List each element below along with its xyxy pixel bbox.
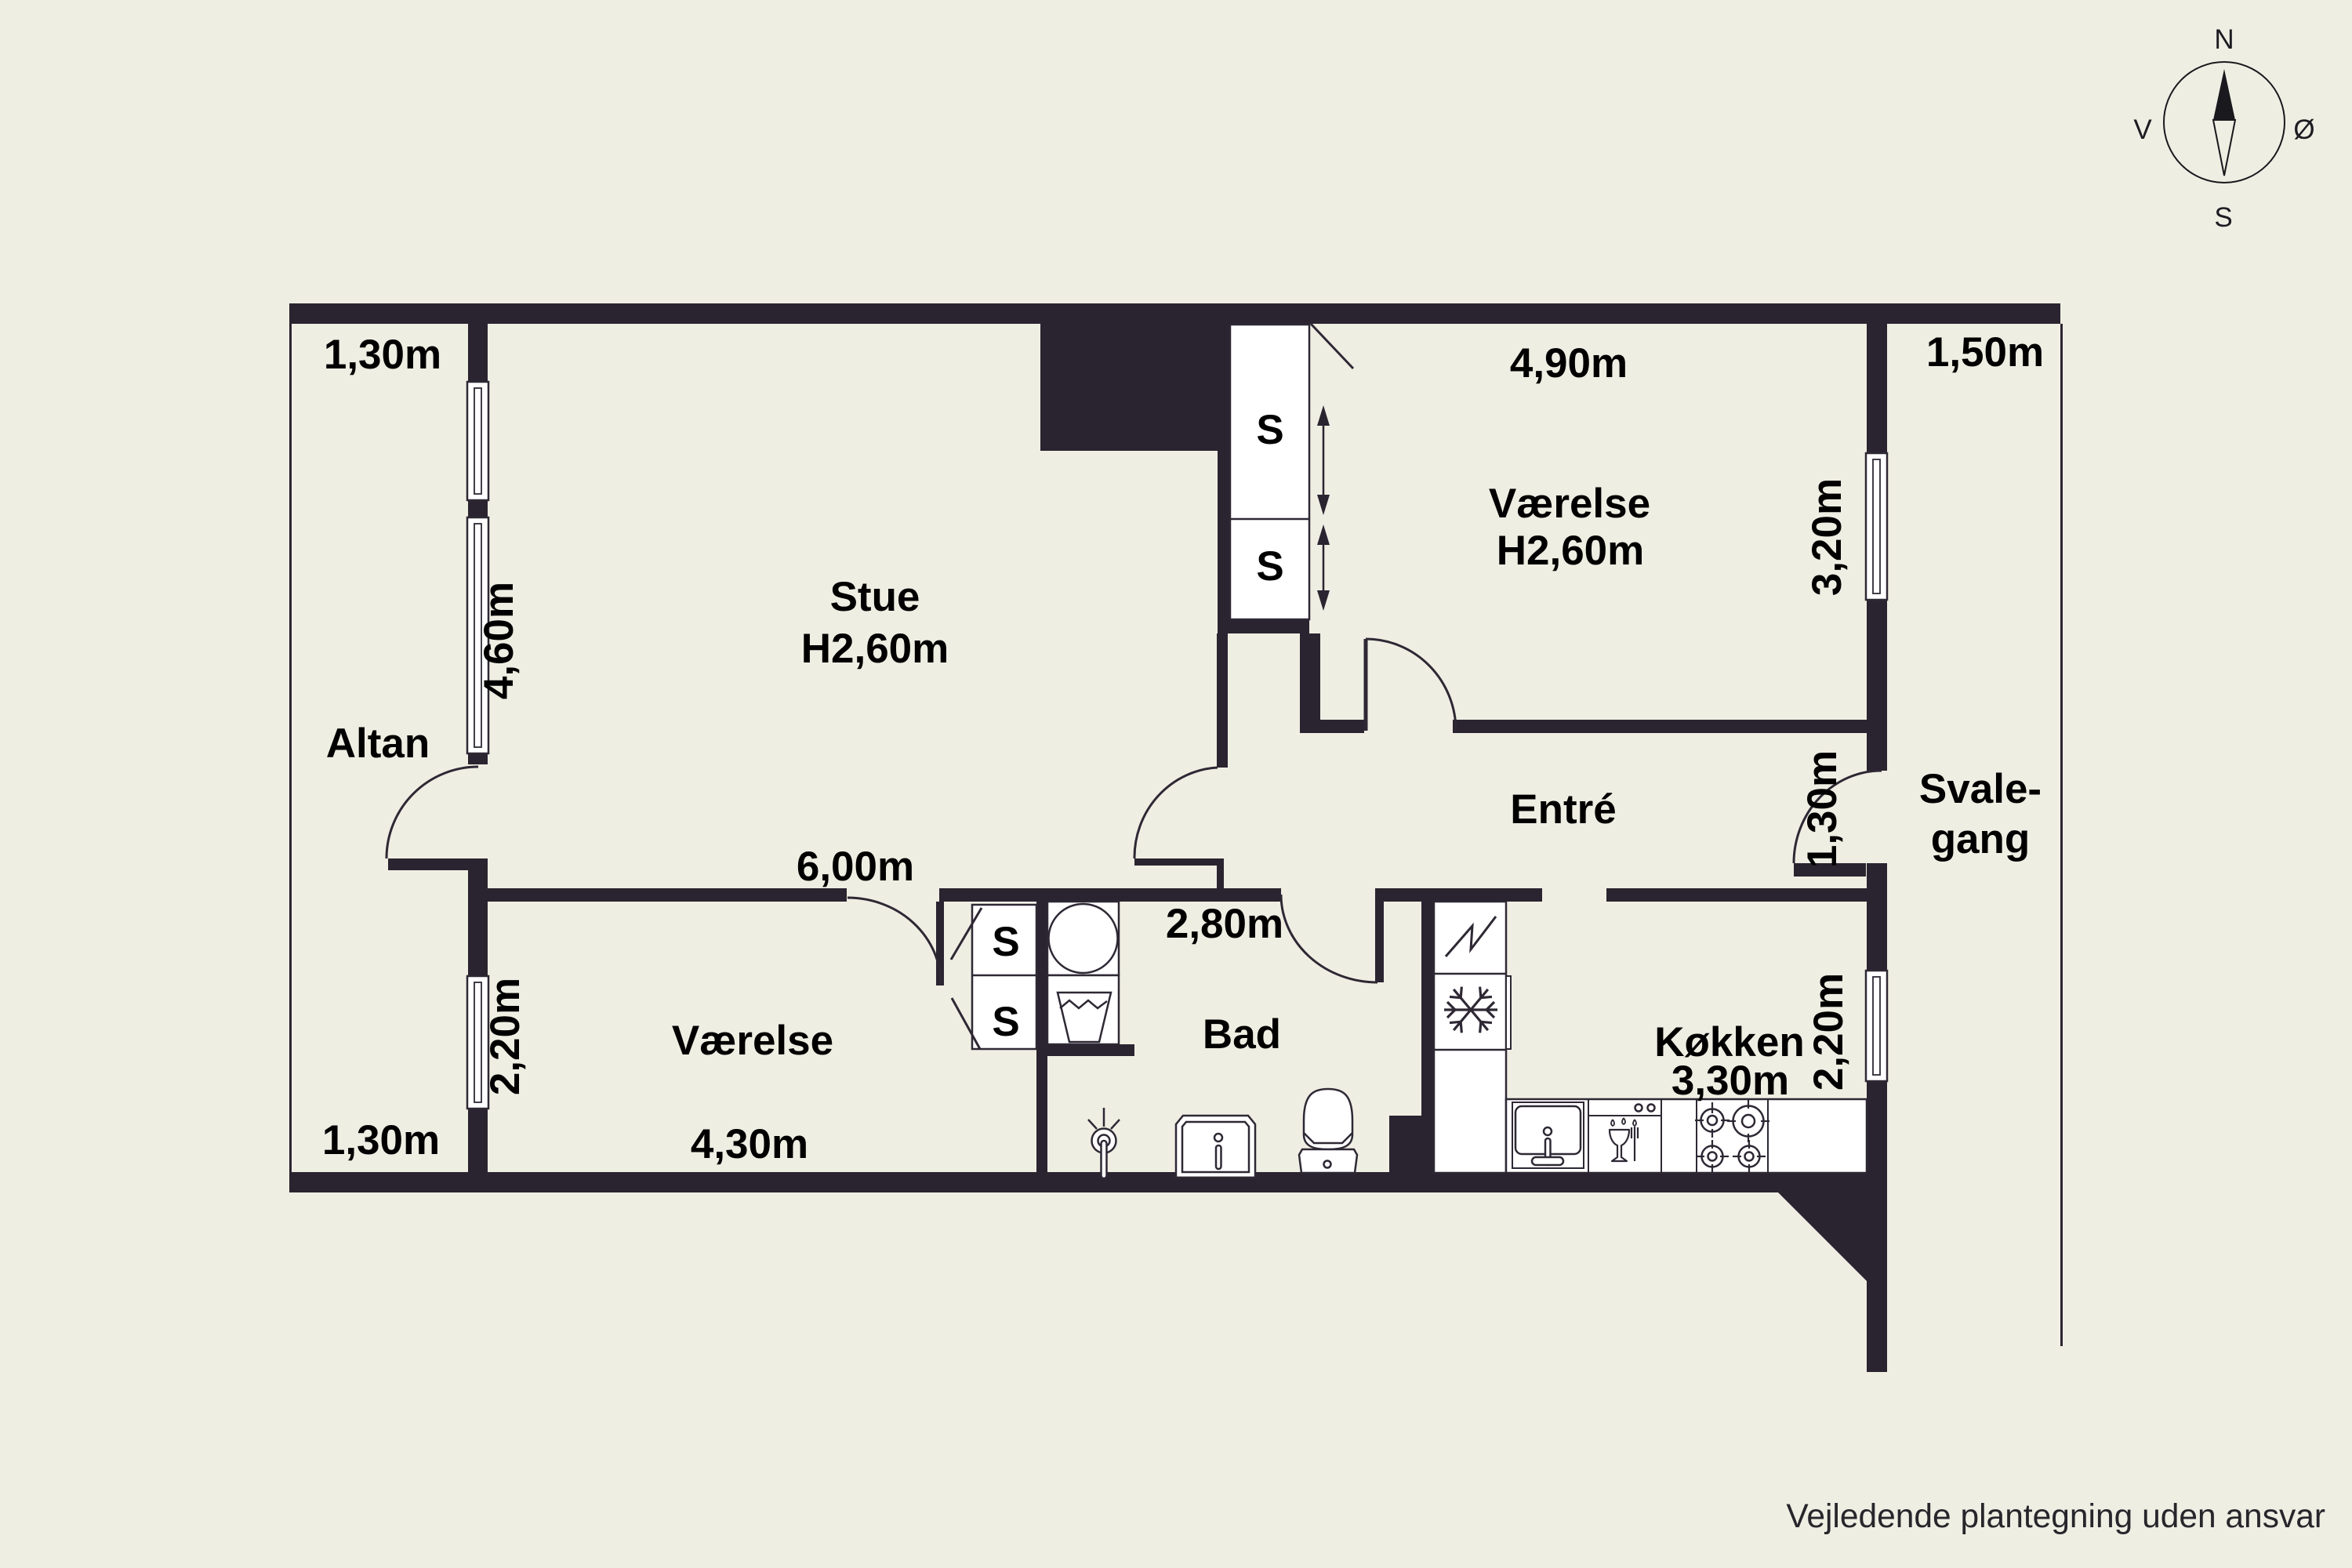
svg-text:Stue: Stue xyxy=(830,574,920,620)
svg-text:4,30m: 4,30m xyxy=(691,1121,808,1167)
svg-text:H2,60m: H2,60m xyxy=(801,626,949,672)
svg-text:Entré: Entré xyxy=(1510,786,1616,833)
svg-text:2,20m: 2,20m xyxy=(482,978,528,1095)
svg-text:Svale-: Svale- xyxy=(1919,766,2042,812)
svg-text:gang: gang xyxy=(1931,816,2031,862)
svg-text:Værelse: Værelse xyxy=(1489,481,1650,527)
svg-text:Vejledende plantegning uden an: Vejledende plantegning uden ansvar xyxy=(1786,1498,2325,1535)
svg-text:1,30m: 1,30m xyxy=(324,332,441,378)
svg-text:1,30m: 1,30m xyxy=(322,1117,440,1163)
svg-text:S: S xyxy=(2214,202,2232,233)
svg-text:2,80m: 2,80m xyxy=(1166,901,1283,947)
svg-text:1,50m: 1,50m xyxy=(1926,329,2044,376)
svg-text:S: S xyxy=(992,999,1019,1045)
svg-text:4,60m: 4,60m xyxy=(476,582,522,699)
svg-text:6,00m: 6,00m xyxy=(797,844,914,890)
svg-text:S: S xyxy=(1256,407,1283,453)
svg-text:S: S xyxy=(992,919,1019,965)
svg-text:1,30m: 1,30m xyxy=(1799,750,1846,868)
svg-text:Bad: Bad xyxy=(1203,1011,1281,1058)
svg-text:V: V xyxy=(2133,114,2152,145)
svg-text:N: N xyxy=(2214,24,2234,55)
svg-text:Altan: Altan xyxy=(326,720,430,767)
svg-text:2,20m: 2,20m xyxy=(1806,973,1852,1091)
svg-text:H2,60m: H2,60m xyxy=(1497,528,1645,574)
svg-text:Værelse: Værelse xyxy=(672,1018,833,1064)
svg-text:3,30m: 3,30m xyxy=(1671,1058,1789,1104)
svg-text:3,20m: 3,20m xyxy=(1804,478,1850,596)
svg-text:Ø: Ø xyxy=(2293,114,2314,145)
svg-text:S: S xyxy=(1256,543,1283,590)
svg-text:4,90m: 4,90m xyxy=(1510,340,1628,387)
